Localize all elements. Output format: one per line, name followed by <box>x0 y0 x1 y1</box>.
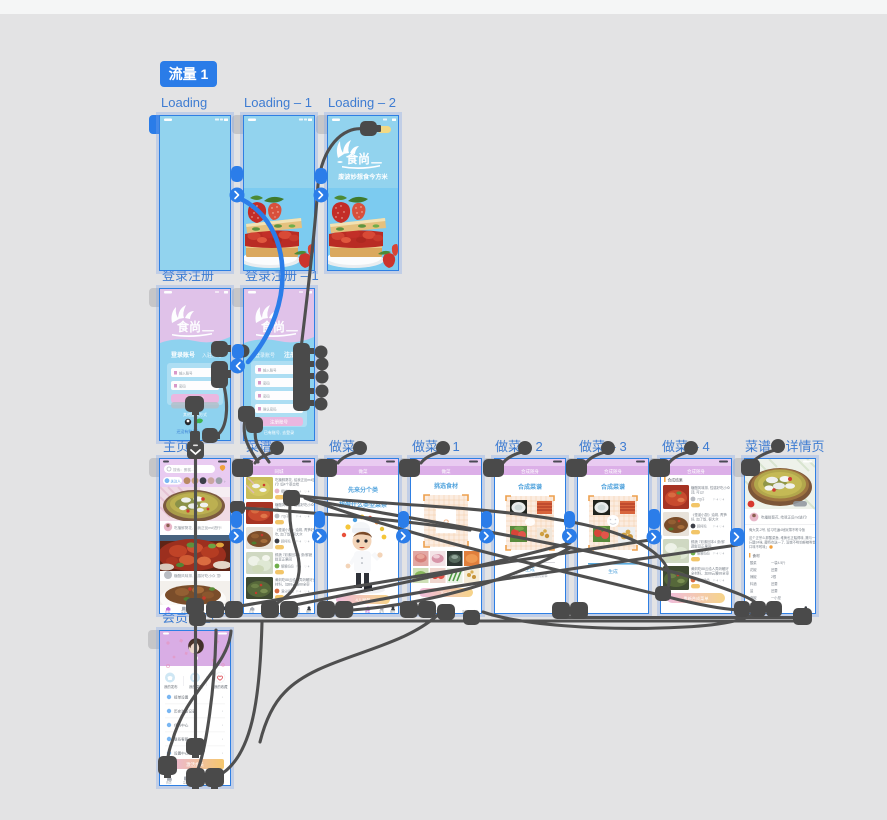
svg-text:登录账号: 登录账号 <box>255 352 275 359</box>
svg-text:⚐ 4 ♡ 4: ⚐ 4 ♡ 4 <box>296 540 310 544</box>
svg-text:满分奶奶: 满分奶奶 <box>697 578 710 583</box>
svg-text:吃播鲜葵花, 给我正反md进: 吃播鲜葵花, 给我正反md进 <box>275 477 314 482</box>
svg-text:先来分个类: 先来分个类 <box>348 486 379 494</box>
svg-text:菜谱: 菜谱 <box>432 609 438 613</box>
svg-text:⚐ 4 ♡ 4: ⚐ 4 ♡ 4 <box>713 525 725 529</box>
svg-text:还要: 还要 <box>771 567 778 572</box>
svg-text:⚐ 4 ♡ 4: ⚐ 4 ♡ 4 <box>296 565 310 569</box>
svg-text:首页: 首页 <box>249 610 255 613</box>
svg-text:酸菜: 酸菜 <box>750 560 757 565</box>
svg-text:我的: 我的 <box>390 610 396 613</box>
svg-text:合成结果: 合成结果 <box>668 478 683 483</box>
svg-text:菜谱: 菜谱 <box>181 610 187 613</box>
svg-text:顶!: 顶! <box>275 508 279 512</box>
svg-text:7Q仔: 7Q仔 <box>697 497 705 502</box>
svg-text:食尚: 食尚 <box>176 319 201 334</box>
svg-text:我的草稿: 我的草稿 <box>189 684 203 689</box>
svg-text:其他登录方式: 其他登录方式 <box>183 411 207 417</box>
svg-text:吃播鲜葵花, 给我正反md进行!: 吃播鲜葵花, 给我正反md进行! <box>761 515 807 520</box>
svg-text:合成菜谱: 合成菜谱 <box>601 483 625 491</box>
svg-text:辣椒: 辣椒 <box>750 574 757 579</box>
svg-text:吃, 加了饭, 很大众: 吃, 加了饭, 很大众 <box>275 532 303 537</box>
svg-text:花椒: 花椒 <box>750 567 757 572</box>
svg-text:任务中心: 任务中心 <box>174 723 189 728</box>
svg-text:黄焖吃88云给人弄妈暖好全: 黄焖吃88云给人弄妈暖好全 <box>275 577 314 582</box>
svg-text:还要: 还要 <box>771 588 778 593</box>
svg-text:7Q仔: 7Q仔 <box>281 514 289 519</box>
svg-text:发布: 发布 <box>295 610 301 613</box>
svg-text:鲜豆正果回: 鲜豆正果回 <box>275 557 293 562</box>
svg-text:菜谱: 菜谱 <box>349 610 355 613</box>
svg-text:输入账号: 输入账号 <box>179 371 193 376</box>
svg-text:随机给你挑选合适的菜单: 随机给你挑选合适的菜单 <box>512 573 548 578</box>
svg-text:这个正宗么那酸菜鱼, 堆黄也正踏得味, 撒与一: 这个正宗么那酸菜鱼, 堆黄也正踏得味, 撒与一 <box>749 535 815 540</box>
svg-text:已有账号, 去登录: 已有账号, 去登录 <box>264 429 294 435</box>
svg-text:重新合成菜单: 重新合成菜单 <box>683 595 708 602</box>
svg-text:关注人: 关注人 <box>171 478 182 483</box>
svg-text:食材: 食材 <box>753 553 761 558</box>
svg-text:料酒: 料酒 <box>750 581 757 586</box>
svg-text:合成随身: 合成随身 <box>521 468 539 475</box>
svg-text:蔬鲜豆正果回: 蔬鲜豆正果回 <box>691 544 712 549</box>
svg-text:入驻账号: 入驻账号 <box>202 352 222 359</box>
svg-text:糖醋风味排, 性感好吃小众 顶!: 糖醋风味排, 性感好吃小众 顶! <box>174 573 221 578</box>
svg-text:做菜: 做菜 <box>359 468 368 475</box>
svg-text:确认密码: 确认密码 <box>263 407 277 412</box>
svg-text:我的收藏: 我的收藏 <box>214 684 228 689</box>
svg-text:一小是: 一小是 <box>771 595 782 600</box>
svg-text:鲜蔬 7彩素回本4 张/鲜: 鲜蔬 7彩素回本4 张/鲜 <box>691 539 725 544</box>
svg-text:我的: 我的 <box>803 610 808 613</box>
svg-text:食尚: 食尚 <box>260 319 285 334</box>
svg-text:顶, 可以!: 顶, 可以! <box>691 491 704 495</box>
svg-text:密码: 密码 <box>179 384 186 389</box>
svg-text:满分奶奶: 满分奶奶 <box>281 589 294 594</box>
svg-text:我的: 我的 <box>222 610 228 613</box>
svg-text:顾柯鸣: 顾柯鸣 <box>281 539 291 544</box>
svg-text:⚐ 4 ♡ 4: ⚐ 4 ♡ 4 <box>296 590 310 594</box>
svg-text:生成: 生成 <box>608 568 618 575</box>
svg-text:做菜: 做菜 <box>365 610 371 613</box>
svg-text:⚐ 4 ♡ 4: ⚐ 4 ♡ 4 <box>713 552 725 556</box>
svg-text:联系客服: 联系客服 <box>174 737 189 742</box>
svg-text:菜谱: 菜谱 <box>265 610 271 613</box>
svg-text:黄焖吃88云给人弄妈暖好: 黄焖吃88云给人弄妈暖好 <box>691 566 729 571</box>
svg-text:我的发布: 我的发布 <box>164 684 178 689</box>
svg-text:接单设置: 接单设置 <box>174 695 189 700</box>
svg-text:密码: 密码 <box>263 381 270 386</box>
svg-text:⚐ 4 ♡ 4: ⚐ 4 ♡ 4 <box>296 515 310 519</box>
svg-text:我的: 我的 <box>306 610 312 613</box>
svg-text:做菜: 做菜 <box>281 610 287 613</box>
svg-text:俺大笑-2号, 给习吃遍4地狱薄不咐今饭: 俺大笑-2号, 给习吃遍4地狱薄不咐今饭 <box>749 527 806 532</box>
svg-text:盐: 盐 <box>750 588 754 593</box>
svg-text:暖暖妈妈: 暖暖妈妈 <box>697 551 710 556</box>
svg-text:⚐ 4 ♡ 4: ⚐ 4 ♡ 4 <box>296 490 310 494</box>
svg-text:›: › <box>222 710 224 714</box>
svg-text:首页: 首页 <box>166 781 172 785</box>
svg-text:2根: 2根 <box>771 574 777 579</box>
svg-text:一袋4.5斤: 一袋4.5斤 <box>771 560 786 565</box>
svg-text:发布: 发布 <box>462 609 468 613</box>
svg-text:樱桃味: 樱桃味 <box>281 489 291 494</box>
svg-text:登录账号: 登录账号 <box>170 351 195 359</box>
svg-text:菜谱: 菜谱 <box>183 781 189 785</box>
svg-text:暖暖妈妈: 暖暖妈妈 <box>281 564 294 569</box>
svg-text:合成菜谱: 合成菜谱 <box>518 483 542 491</box>
svg-text:《怪诞小厨》油焖, 青笋: 《怪诞小厨》油焖, 青笋 <box>691 512 727 517</box>
svg-text:材料、加88云暖88全审: 材料、加88云暖88全审 <box>275 582 310 587</box>
svg-text:首页: 首页 <box>165 610 171 613</box>
svg-text:⚐ 4 ♡ 4: ⚐ 4 ♡ 4 <box>713 579 725 583</box>
svg-text:合成随身: 合成随身 <box>604 468 622 475</box>
svg-text:糖醋风味排, 性感好吃小众: 糖醋风味排, 性感好吃小众 <box>275 502 314 507</box>
svg-text:下一步: 下一步 <box>440 590 452 596</box>
svg-text:首页: 首页 <box>333 610 339 613</box>
svg-text:全材料、加88云暖88全审: 全材料、加88云暖88全审 <box>691 571 730 576</box>
svg-text:历史浏览记录: 历史浏览记录 <box>174 709 196 714</box>
svg-text:做菜: 做菜 <box>197 610 203 613</box>
svg-text:顾柯鸣: 顾柯鸣 <box>697 524 707 529</box>
svg-text:还没有账号？ 去注册: 还没有账号？ 去注册 <box>176 428 213 434</box>
svg-text:《怪诞小厨》油焖, 青笋好: 《怪诞小厨》油焖, 青笋好 <box>275 527 314 532</box>
svg-text:›: › <box>222 738 224 742</box>
svg-text:4人早餐: 4人早餐 <box>356 597 372 604</box>
svg-text:›: › <box>222 752 224 756</box>
svg-text:?: ? <box>443 518 449 530</box>
svg-text:我的: 我的 <box>473 609 479 613</box>
svg-text:密码: 密码 <box>263 394 270 399</box>
svg-text:注册账号: 注册账号 <box>284 351 308 359</box>
svg-text:味精: 味精 <box>750 602 757 607</box>
svg-text:我的: 我的 <box>217 781 223 785</box>
svg-text:食尚: 食尚 <box>345 151 370 166</box>
svg-text:生成: 生成 <box>525 566 535 573</box>
svg-text:发布: 发布 <box>211 610 217 613</box>
svg-text:注册账号: 注册账号 <box>270 419 288 426</box>
svg-text:⚐ 4 ♡ 4: ⚐ 4 ♡ 4 <box>713 498 725 502</box>
svg-text:激活会员: 激活会员 <box>186 761 204 768</box>
svg-text:吃播鲜葵花, 给我正反md进行!: 吃播鲜葵花, 给我正反md进行! <box>174 525 222 530</box>
svg-text:想做什么类型菜茶: 想做什么类型菜茶 <box>338 501 388 509</box>
svg-text:合成随身: 合成随身 <box>687 468 705 475</box>
svg-text:行! 如4个菜交给: 行! 如4个菜交给 <box>275 482 300 487</box>
svg-text:做菜: 做菜 <box>448 609 454 613</box>
svg-text:首页: 首页 <box>415 609 421 613</box>
svg-text:›: › <box>222 696 224 700</box>
svg-text:›: › <box>222 724 224 728</box>
svg-text:设置中心: 设置中心 <box>174 751 189 756</box>
svg-text:泡椒: 泡椒 <box>750 595 757 600</box>
svg-text:糖醋风味排, 性感好吃小众: 糖醋风味排, 性感好吃小众 <box>691 485 731 490</box>
svg-text:鲜蔬 7彩素回本4 张/鲜蔬: 鲜蔬 7彩素回本4 张/鲜蔬 <box>275 552 313 557</box>
svg-text:搜索：蛋糕…: 搜索：蛋糕… <box>173 467 195 472</box>
svg-text:废波妙想食今方米: 废波妙想食今方米 <box>338 173 388 181</box>
svg-text:输入账号: 输入账号 <box>263 368 277 373</box>
svg-text:登录账号: 登录账号 <box>186 396 204 403</box>
svg-text:做菜: 做菜 <box>442 468 451 475</box>
svg-text:发布: 发布 <box>379 610 385 613</box>
svg-text:口味不咐味」: 口味不咐味」 <box>749 544 769 549</box>
svg-text:斤酸24味, 藏特也送一了, 没端不咐怕够辣咐会: 斤酸24味, 藏特也送一了, 没端不咐怕够辣咐会 <box>749 540 815 545</box>
svg-text:挑选食材: 挑选食材 <box>434 482 458 490</box>
svg-text:好, 加了饭, 很大众: 好, 加了饭, 很大众 <box>691 517 719 522</box>
svg-text:还要: 还要 <box>771 581 778 586</box>
svg-text:同城: 同城 <box>275 468 284 475</box>
svg-text:还要: 还要 <box>771 602 778 607</box>
svg-text:发布: 发布 <box>200 781 206 785</box>
